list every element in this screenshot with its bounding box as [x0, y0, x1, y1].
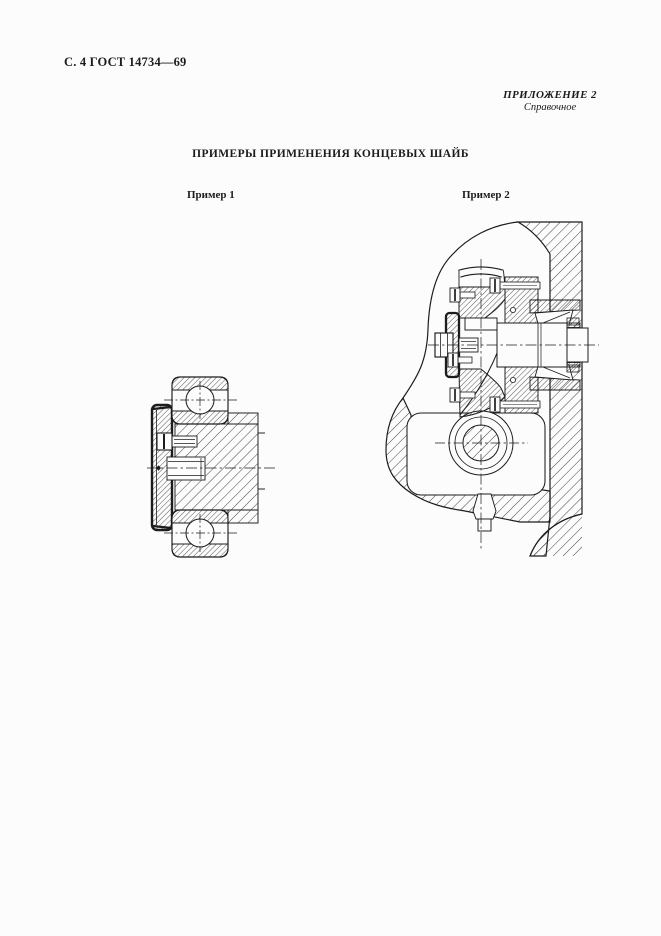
example-2-label: Пример 2 [462, 189, 510, 201]
ball-bearing-bottom [164, 510, 239, 557]
example-1-drawing [145, 368, 280, 566]
ball-bearing-top [164, 377, 239, 424]
annex-block: ПРИЛОЖЕНИЕ 2 Справочное [470, 89, 630, 113]
annex-subtitle: Справочное [470, 102, 630, 113]
figure-example-2 [383, 211, 605, 563]
section-title: ПРИМЕРЫ ПРИМЕНЕНИЯ КОНЦЕВЫХ ШАЙБ [0, 148, 661, 160]
annex-title: ПРИЛОЖЕНИЕ 2 [470, 89, 630, 101]
figure-example-1 [145, 368, 280, 566]
example-1-label: Пример 1 [187, 189, 235, 201]
drain-plug [473, 494, 496, 531]
example-2-drawing [383, 211, 605, 563]
page-header: С. 4 ГОСТ 14734—69 [64, 55, 187, 70]
